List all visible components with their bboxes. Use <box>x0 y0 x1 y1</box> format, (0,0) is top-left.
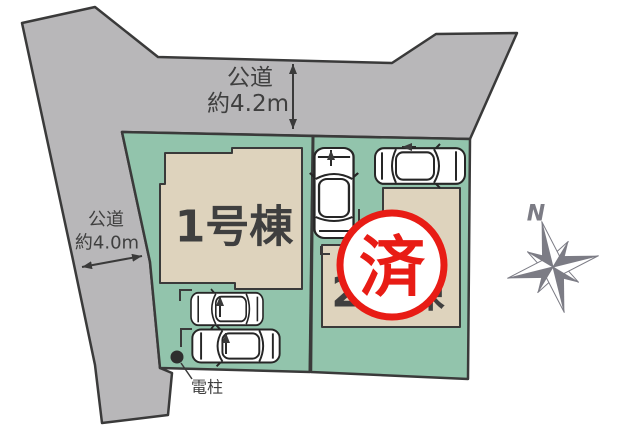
car-plot2-horizontal <box>375 144 465 188</box>
sold-stamp-label: 済 <box>359 228 426 306</box>
utility-pole-label: 電柱 <box>191 378 223 397</box>
compass-rose-icon <box>496 210 610 324</box>
road-left-width-label: 約4.0m <box>75 233 139 254</box>
compass-north-label: N <box>527 202 545 227</box>
car-plot1-upper <box>191 289 263 329</box>
sold-stamp: 済 <box>340 213 444 317</box>
utility-pole-dot <box>171 351 184 364</box>
site-plan-image: 公道 約4.2m 公道 約4.0m 1号棟 2号棟 済 電柱 <box>0 0 622 435</box>
road-top-name-label: 公道 <box>227 65 273 91</box>
road-left-name-label: 公道 <box>88 210 124 231</box>
site-plan-svg: 公道 約4.2m 公道 約4.0m 1号棟 2号棟 済 電柱 <box>0 0 622 435</box>
road-top-width-label: 約4.2m <box>207 91 289 117</box>
car-plot1-lower <box>192 326 279 367</box>
building-1-label: 1号棟 <box>175 202 295 253</box>
car-plot2-vertical <box>310 148 358 238</box>
